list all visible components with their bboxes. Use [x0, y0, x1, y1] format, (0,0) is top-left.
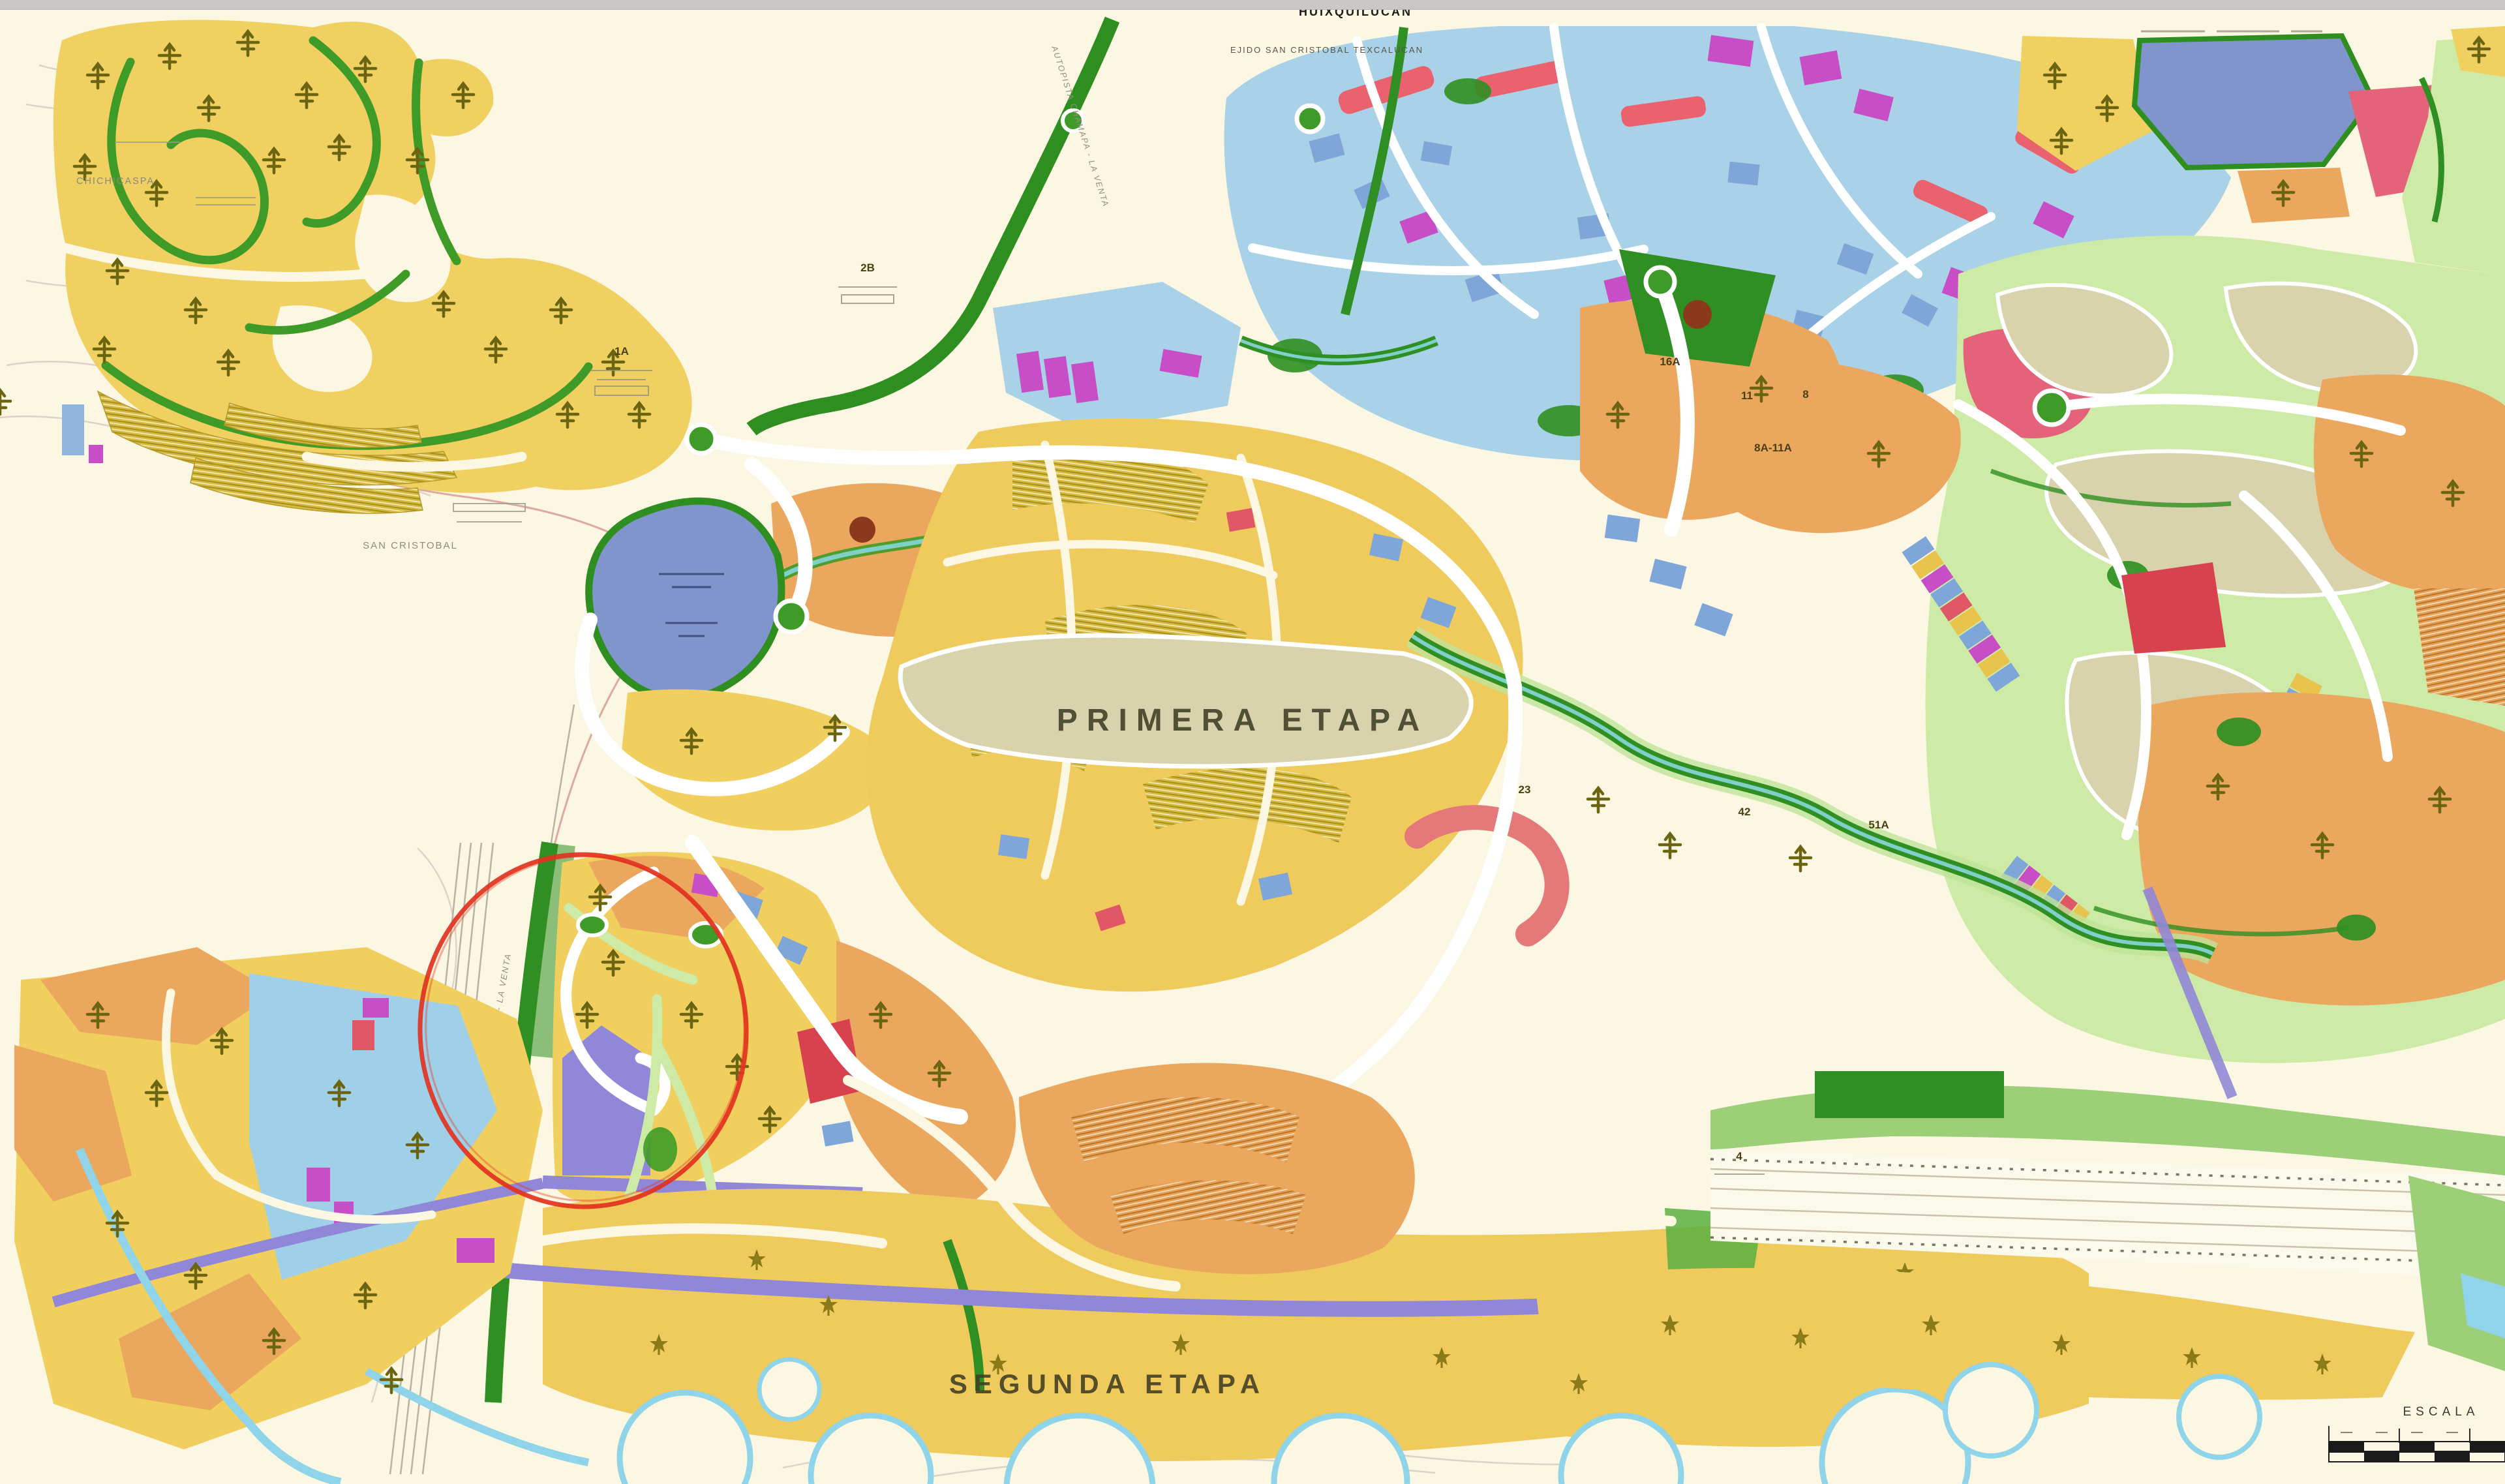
- label-san-cristobal: SAN CRISTOBAL: [363, 540, 458, 551]
- label-primera-etapa: PRIMERA ETAPA: [1057, 703, 1429, 738]
- parcel-label: 4: [1736, 1150, 1742, 1162]
- parcel-label: 8: [1802, 388, 1808, 401]
- parcel-label: 8A-11A: [1754, 442, 1792, 454]
- lake: [589, 501, 782, 699]
- parcel-label: 1A: [615, 345, 629, 357]
- parcel-label: 2B: [860, 262, 875, 274]
- map-screenshot: CHICHICASPA SAN CRISTOBAL AUTOPISTA CHAM…: [0, 0, 2505, 1484]
- parcel-label: 42: [1738, 806, 1751, 818]
- parcel-label: 23: [1519, 783, 1531, 796]
- label-escala: ESCALA: [2403, 1405, 2480, 1419]
- master-plan-map: CHICHICASPA SAN CRISTOBAL AUTOPISTA CHAM…: [0, 0, 2505, 1484]
- label-segunda-etapa: SEGUNDA ETAPA: [949, 1369, 1266, 1399]
- window-top-bar: [0, 0, 2505, 10]
- parcel-label: 16A: [1660, 356, 1680, 368]
- parcel-label: 51A: [1868, 819, 1889, 831]
- label-chichicaspa: CHICHICASPA: [76, 176, 155, 187]
- parcel-label: 11: [1741, 389, 1753, 402]
- label-ejido: EJIDO SAN CRISTOBAL TEXCALUCAN: [1230, 45, 1423, 55]
